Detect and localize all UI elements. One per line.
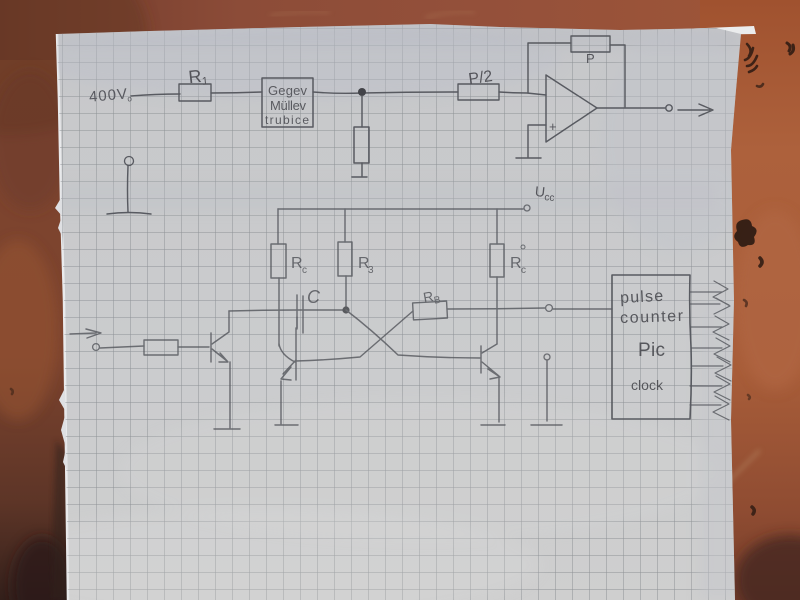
svg-text:R: R <box>510 255 522 272</box>
svg-text:c: c <box>302 265 307 276</box>
svg-text:R: R <box>291 255 303 272</box>
svg-text:R: R <box>187 66 202 87</box>
svg-text:pulse: pulse <box>620 288 664 307</box>
svg-text:c: c <box>521 265 526 276</box>
svg-text:P: P <box>586 51 595 66</box>
svg-text:+: + <box>549 119 557 134</box>
svg-text:Gegev: Gegev <box>268 83 308 98</box>
svg-text:clock: clock <box>631 377 664 393</box>
svg-text:counter: counter <box>620 308 684 327</box>
svg-text:1: 1 <box>201 75 208 88</box>
svg-text:400V: 400V <box>88 86 127 106</box>
svg-text:Pic: Pic <box>638 340 665 361</box>
svg-text:P/2: P/2 <box>467 68 493 88</box>
svg-text:3: 3 <box>368 265 374 276</box>
svg-text:Müllev: Müllev <box>270 98 307 113</box>
svg-text:cc: cc <box>544 192 555 204</box>
svg-text:trubice: trubice <box>265 113 309 127</box>
svg-text:C: C <box>307 287 321 307</box>
